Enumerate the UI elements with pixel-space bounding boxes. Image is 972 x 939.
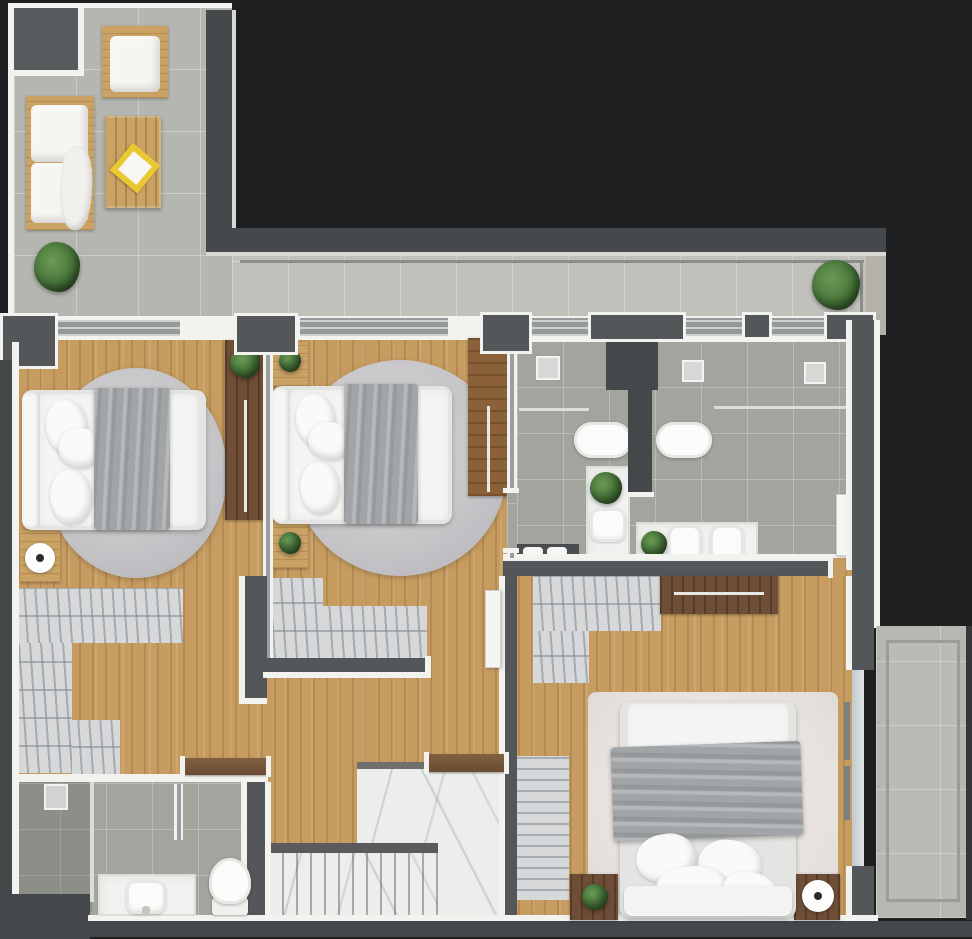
terrace-plant-right <box>812 260 860 310</box>
bedroom2-wardrobe-handle <box>487 406 490 492</box>
window-bath-right-b <box>772 318 826 336</box>
bedroom3-dresser-handle <box>674 592 764 595</box>
bath-center-shower-mixer <box>536 356 560 380</box>
door-bath-bl-jamb-a <box>180 756 185 777</box>
bath-center-sink <box>590 508 626 542</box>
left-wall-inner-white <box>12 342 19 900</box>
bath-bl-shower-glass <box>90 782 94 902</box>
window-bedroom2 <box>300 318 448 336</box>
bedroom1-headboard <box>22 392 40 528</box>
balcony-edge-right <box>966 626 972 920</box>
closet3-hatch-top <box>533 575 661 631</box>
parapet-wall-vertical <box>206 10 232 256</box>
bath-bl-faucet <box>142 906 150 915</box>
staircase-stringer <box>268 843 438 853</box>
bedroom1-flower-dish-center <box>36 554 44 562</box>
bottom-wall-dark <box>85 921 972 937</box>
door-stair-hall-jamb-a <box>424 752 429 774</box>
door-bath-center-jamb-b <box>503 548 519 553</box>
door-bath-bl-jamb-b <box>266 756 271 777</box>
closet1-hatch-top <box>18 588 183 643</box>
wall-bedroom3-west <box>505 576 517 758</box>
closet2-hatch-right <box>323 606 427 658</box>
window-bath-center <box>532 318 590 336</box>
terrace-floor-top <box>232 248 868 318</box>
bath-bl-toilet-bowl <box>209 858 251 904</box>
closet3-hatch-side <box>533 631 589 683</box>
glass-door-frame-a <box>844 702 850 760</box>
bath-center-vanity-plant <box>590 472 622 504</box>
door-stair-hall <box>428 754 506 772</box>
corner-wall-bottom-left <box>0 894 90 939</box>
bedroom1-wardrobe-handle <box>244 400 247 512</box>
bath-right-shower-mixer-a <box>682 360 704 382</box>
corner-block-edge-right <box>78 3 84 73</box>
bath-right-tub <box>656 422 712 458</box>
terrace-wall-line-top <box>8 3 232 8</box>
balcony-frame <box>886 640 960 902</box>
terrace-plant-left <box>34 242 80 292</box>
closet2-hatch-left <box>265 578 323 658</box>
bedroom3-blanket <box>610 741 803 842</box>
bath-bl-partition-stub <box>174 784 183 840</box>
wall-chunk <box>245 576 267 700</box>
wall-bedroom2-south-cap <box>425 656 431 678</box>
floor-plan-render <box>0 0 972 939</box>
terrace-wall-line-left <box>8 3 14 335</box>
bedroom2-plant-bottom <box>279 532 301 554</box>
wall-bedroom2-south <box>263 658 425 672</box>
closet1-hatch-left <box>18 643 72 773</box>
bedroom2-headboard <box>272 388 290 522</box>
right-wall-outer-white <box>874 320 880 628</box>
door-bath-bl <box>184 758 268 775</box>
wall-bath-partition-cap <box>626 492 654 497</box>
wall-bath-partition-lower <box>628 388 652 496</box>
balcony-sliding-glass-door <box>852 670 864 868</box>
terrace-railing-line-v <box>860 260 863 314</box>
window-bath-right-a <box>686 318 742 336</box>
door-bath-center-jamb-a <box>503 488 519 493</box>
wall-pier-bed2-bath <box>480 312 532 354</box>
door-stair-hall-jamb-b <box>504 752 509 774</box>
bedroom3-dresser <box>660 576 778 614</box>
door-bath-right-jamb-a <box>828 554 833 578</box>
terrace-railing-line-h <box>240 260 864 263</box>
wall-chunk-white-bottom <box>239 698 267 704</box>
bath-center-shower-glass <box>519 408 589 411</box>
door-opening-bath-center <box>507 492 517 550</box>
wall-bedroom3-north-white <box>503 554 860 561</box>
bath-center-tub <box>574 422 632 458</box>
bath-bl-shower-mixer <box>44 784 68 810</box>
right-wall-mid <box>852 572 874 670</box>
wall-bedroom3-north <box>503 561 860 576</box>
glass-door-frame-b <box>844 766 850 820</box>
parapet-highlight-horizontal <box>206 252 886 256</box>
closet1-hatch-bottom <box>72 720 120 774</box>
bath-right-shower-glass <box>714 406 848 409</box>
door-leaf-bedroom3 <box>485 590 501 668</box>
wall-pier-bed1-bed2 <box>234 313 298 355</box>
terrace-corner-block <box>8 3 78 72</box>
parapet-wall-horizontal <box>206 228 886 252</box>
right-wall-bot <box>852 866 874 920</box>
wall-bath-bl-north <box>14 774 268 782</box>
wall-stairhall-east <box>505 758 517 922</box>
parapet-highlight-vertical <box>232 10 236 252</box>
bedroom3-headboard <box>624 886 792 916</box>
corner-block-edge-bottom <box>8 70 84 76</box>
staircase-treads <box>268 853 438 920</box>
wall-pier-bath-center-T <box>588 312 686 342</box>
bedroom3-flower-dish-center <box>814 892 822 900</box>
bedroom3-plant-left <box>582 884 608 910</box>
bedroom2-blanket <box>344 384 418 524</box>
right-wall-top <box>852 320 874 572</box>
wall-stairs-west <box>247 782 265 922</box>
bedroom1-blanket <box>94 388 170 530</box>
window-bedroom1 <box>58 320 180 336</box>
wall-pier-bath-right <box>742 312 772 340</box>
terrace-armchair-cushion <box>110 36 160 92</box>
wall-bedroom2-south-white <box>263 672 429 678</box>
bath-right-shower-mixer-b <box>804 362 826 384</box>
closet3-hatch-strip <box>517 756 569 900</box>
wall-bath-partition-upper <box>606 340 658 390</box>
wall-stairs-west-white-r <box>265 782 271 922</box>
